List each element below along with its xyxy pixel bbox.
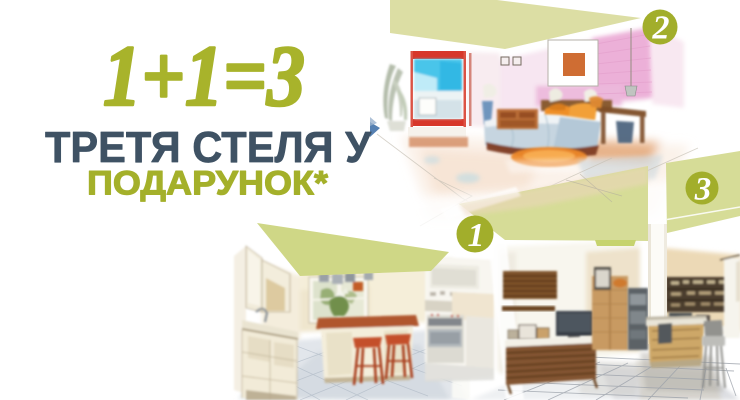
svg-text:ПОДАРУНОК*: ПОДАРУНОК* bbox=[87, 165, 329, 203]
svg-text:2: 2 bbox=[652, 10, 670, 47]
svg-text:1: 1 bbox=[468, 217, 485, 254]
svg-text:3: 3 bbox=[694, 172, 712, 208]
svg-text:1+1=3: 1+1=3 bbox=[103, 27, 305, 124]
